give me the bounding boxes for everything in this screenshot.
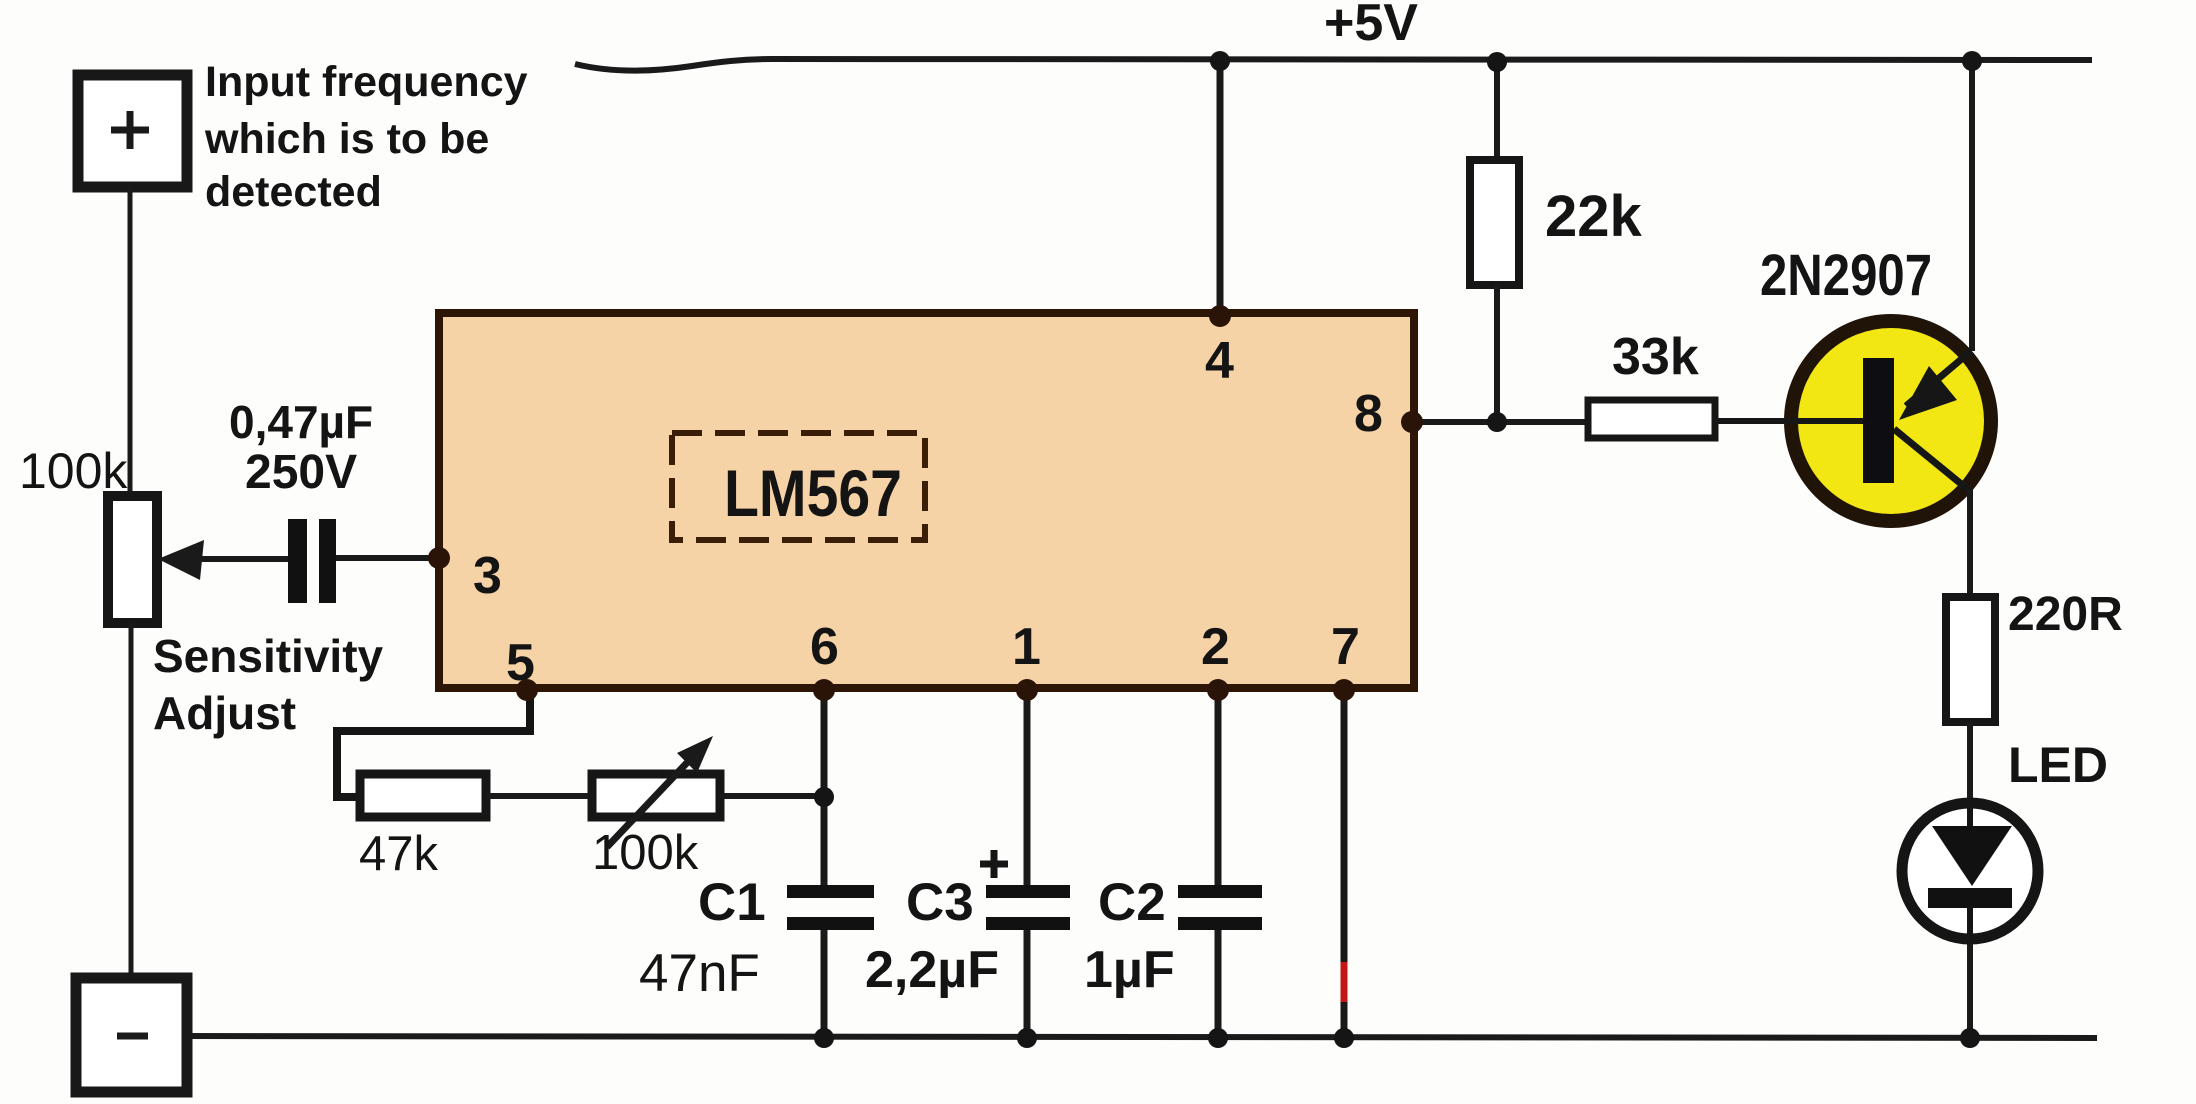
svg-text:100k: 100k [592, 826, 699, 880]
svg-text:1: 1 [1012, 618, 1041, 676]
svg-text:4: 4 [1205, 332, 1234, 390]
svg-text:Adjust: Adjust [153, 687, 296, 739]
svg-text:2,2µF: 2,2µF [865, 941, 999, 999]
svg-text:LM567: LM567 [724, 456, 902, 530]
svg-text:C3: C3 [906, 873, 974, 932]
svg-text:detected: detected [205, 168, 382, 216]
svg-text:250V: 250V [245, 446, 357, 499]
svg-text:220R: 220R [2008, 588, 2123, 641]
svg-text:22k: 22k [1545, 184, 1643, 249]
svg-text:+5V: +5V [1324, 0, 1418, 52]
svg-text:2: 2 [1201, 618, 1230, 676]
svg-text:C2: C2 [1098, 873, 1166, 932]
svg-text:0,47µF: 0,47µF [229, 396, 373, 448]
svg-text:2N2907: 2N2907 [1760, 243, 1932, 308]
svg-text:100k: 100k [19, 443, 128, 499]
svg-text:1µF: 1µF [1084, 941, 1175, 999]
svg-text:47k: 47k [359, 827, 439, 881]
svg-text:33k: 33k [1612, 328, 1699, 386]
svg-text:47nF: 47nF [639, 944, 760, 1003]
svg-text:8: 8 [1354, 385, 1383, 443]
svg-text:LED: LED [2008, 737, 2108, 793]
svg-text:which is to be: which is to be [204, 115, 489, 163]
svg-text:3: 3 [473, 547, 502, 605]
svg-text:Sensitivity: Sensitivity [153, 630, 384, 682]
svg-text:7: 7 [1331, 618, 1360, 676]
svg-text:C1: C1 [698, 873, 766, 932]
svg-text:Input frequency: Input frequency [205, 58, 528, 106]
svg-text:6: 6 [810, 618, 839, 676]
